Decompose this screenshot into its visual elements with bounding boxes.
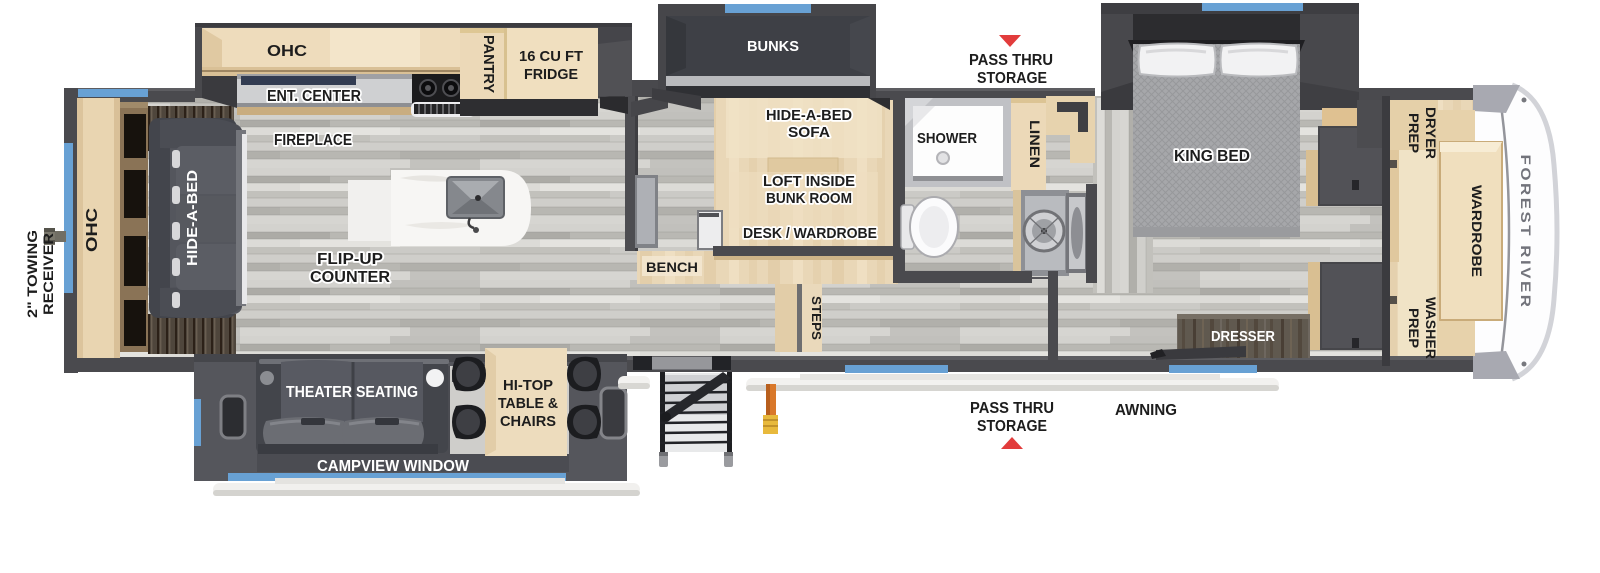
svg-text:HI-TOP: HI-TOP bbox=[503, 377, 553, 394]
svg-text:RECEIVER: RECEIVER bbox=[40, 233, 56, 315]
svg-text:16 CU FT: 16 CU FT bbox=[519, 48, 583, 65]
svg-text:WARDROBE: WARDROBE bbox=[1469, 185, 1485, 277]
svg-text:CAMPVIEW WINDOW: CAMPVIEW WINDOW bbox=[317, 458, 470, 475]
svg-text:BENCH: BENCH bbox=[646, 259, 698, 275]
svg-text:KING BED: KING BED bbox=[1174, 148, 1250, 165]
svg-text:DRYER: DRYER bbox=[1423, 107, 1439, 159]
svg-text:OHC: OHC bbox=[267, 43, 307, 60]
svg-text:WASHER: WASHER bbox=[1423, 297, 1439, 359]
svg-text:SOFA: SOFA bbox=[788, 124, 830, 141]
svg-text:LINEN: LINEN bbox=[1027, 120, 1043, 168]
svg-text:FOREST RIVER: FOREST RIVER bbox=[1518, 155, 1533, 310]
svg-text:PASS THRU: PASS THRU bbox=[970, 400, 1054, 417]
svg-text:2" TOWING: 2" TOWING bbox=[24, 230, 40, 318]
svg-text:HIDE-A-BED: HIDE-A-BED bbox=[184, 170, 201, 266]
svg-text:ENT. CENTER: ENT. CENTER bbox=[267, 88, 361, 105]
svg-text:FIREPLACE: FIREPLACE bbox=[274, 132, 352, 149]
svg-text:PASS THRU: PASS THRU bbox=[969, 52, 1053, 69]
svg-text:CHAIRS: CHAIRS bbox=[500, 413, 556, 430]
svg-text:LOFT INSIDE: LOFT INSIDE bbox=[763, 173, 855, 190]
svg-text:FLIP-UP: FLIP-UP bbox=[317, 251, 383, 268]
svg-text:DRESSER: DRESSER bbox=[1211, 328, 1275, 345]
svg-text:SHOWER: SHOWER bbox=[917, 130, 977, 147]
svg-text:COUNTER: COUNTER bbox=[310, 269, 390, 286]
svg-text:BUNK ROOM: BUNK ROOM bbox=[766, 190, 852, 207]
svg-text:THEATER SEATING: THEATER SEATING bbox=[286, 384, 418, 401]
svg-text:STEPS: STEPS bbox=[809, 296, 824, 340]
svg-text:PANTRY: PANTRY bbox=[480, 35, 497, 93]
svg-text:STORAGE: STORAGE bbox=[977, 70, 1047, 87]
svg-text:DESK / WARDROBE: DESK / WARDROBE bbox=[743, 225, 877, 242]
svg-text:HIDE-A-BED: HIDE-A-BED bbox=[766, 107, 852, 124]
svg-text:STORAGE: STORAGE bbox=[977, 418, 1047, 435]
svg-text:OHC: OHC bbox=[84, 207, 101, 252]
svg-text:TABLE &: TABLE & bbox=[498, 395, 558, 412]
svg-text:FRIDGE: FRIDGE bbox=[524, 66, 578, 83]
svg-text:AWNING: AWNING bbox=[1115, 402, 1177, 419]
svg-text:PREP: PREP bbox=[1406, 113, 1422, 153]
svg-text:PREP: PREP bbox=[1406, 308, 1422, 348]
svg-text:BUNKS: BUNKS bbox=[747, 38, 799, 55]
